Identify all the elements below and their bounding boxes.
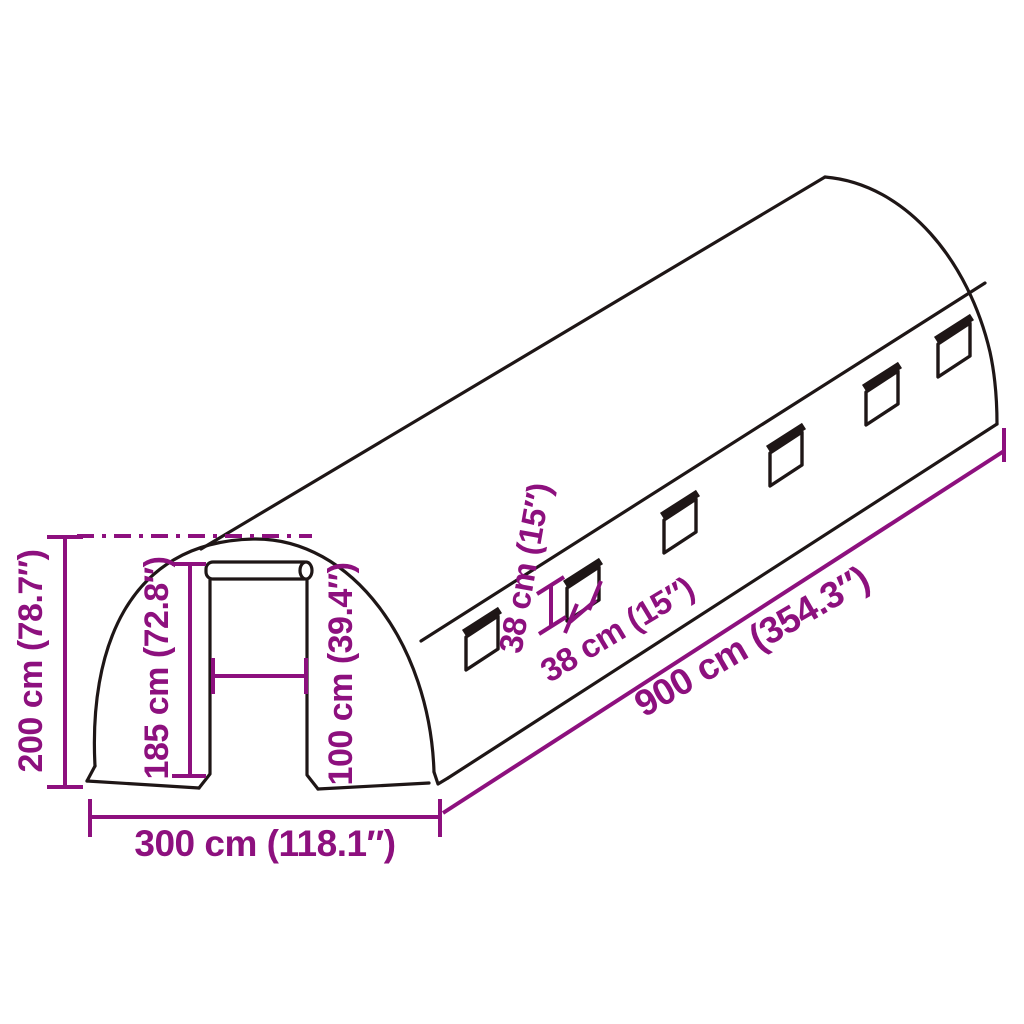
window-height-dimension [537, 577, 566, 634]
door [206, 562, 312, 579]
window [936, 317, 972, 377]
door-height-label: 185 cm (72.8″) [138, 557, 176, 780]
greenhouse-outline [87, 177, 997, 789]
diagram-canvas: 200 cm (78.7″) 185 cm (72.8″) 100 cm (39… [0, 0, 1024, 1024]
back-arch-outline [825, 177, 997, 424]
front-right-corner-notch [434, 772, 448, 784]
door-left-jamb [199, 580, 210, 788]
door-right-jamb [307, 580, 318, 789]
base-width-label: 300 cm (118.1″) [134, 823, 395, 864]
front-ground-left [87, 781, 199, 788]
door-height-dimension [172, 564, 206, 776]
window [662, 493, 698, 553]
window [768, 426, 804, 486]
door-width-label: 100 cm (39.4″) [322, 563, 360, 786]
door-width-dimension [213, 658, 306, 694]
door-roll-end [300, 562, 312, 579]
roof-ridge-line [201, 177, 825, 549]
window [864, 365, 900, 425]
front-left-flap [87, 766, 95, 781]
greenhouse-dimension-diagram: 200 cm (78.7″) 185 cm (72.8″) 100 cm (39… [0, 0, 1024, 1024]
total-height-label: 200 cm (78.7″) [12, 550, 50, 773]
door-rolled-bar [206, 562, 311, 579]
